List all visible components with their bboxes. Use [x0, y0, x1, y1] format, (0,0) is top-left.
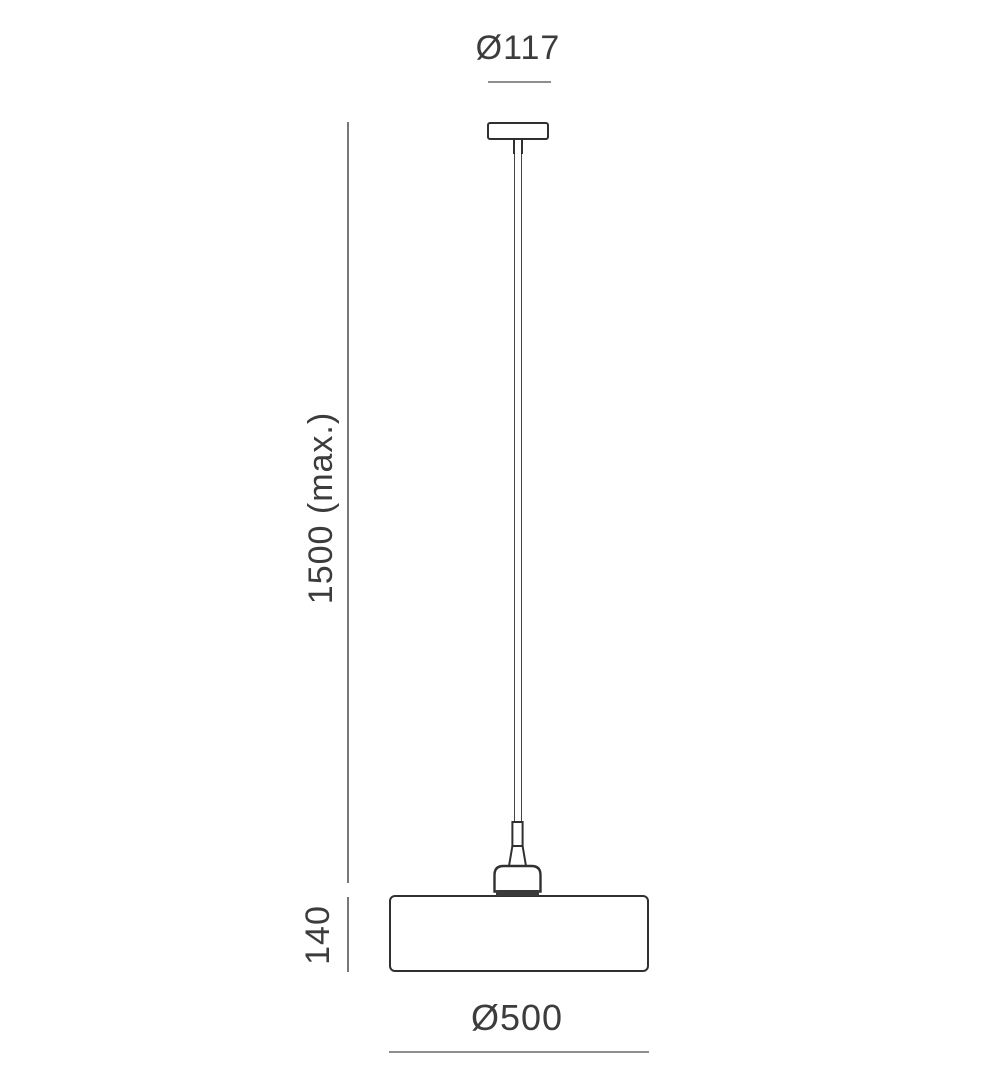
canopy-diameter-label: Ø117 — [418, 28, 618, 68]
suspension-length-label: 1500 (max.) — [301, 378, 341, 638]
canopy-diameter-dimension-line — [488, 81, 551, 83]
shade-height-dimension-line — [347, 897, 349, 972]
lamp-shade — [389, 895, 649, 972]
socket-assembly — [487, 818, 548, 898]
socket-cup — [495, 866, 541, 892]
suspension-length-dimension-line — [347, 122, 349, 883]
shade-diameter-dimension-line — [389, 1051, 649, 1053]
suspension-cord — [514, 154, 522, 822]
ceiling-canopy — [487, 122, 549, 140]
cord-grip-cone — [509, 846, 526, 866]
drawing-canvas: Ø117 1500 (max.) 140 Ø500 — [0, 0, 1000, 1075]
socket-base-plate — [496, 890, 539, 896]
shade-diameter-label: Ø500 — [417, 998, 617, 1038]
shade-height-label: 140 — [298, 875, 338, 995]
cord-grip — [512, 822, 522, 846]
canopy-stem — [513, 140, 523, 154]
